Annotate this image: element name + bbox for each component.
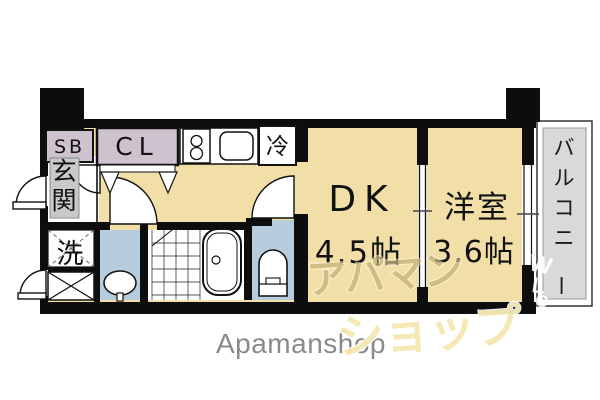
western-room-size-label: 3.6帖 bbox=[433, 235, 515, 270]
wall-divider-bottom-stub bbox=[417, 287, 428, 302]
laundry-label: 洗 bbox=[57, 239, 84, 270]
closet-front bbox=[100, 165, 175, 172]
fridge-label: 冷 bbox=[266, 134, 289, 160]
bathtub-drain-icon bbox=[212, 256, 220, 264]
entrance-label: 玄関 bbox=[51, 157, 76, 215]
toilet bbox=[259, 250, 287, 296]
floorplan-page: バルコニー bbox=[0, 0, 600, 400]
floorplan-svg: バルコニー bbox=[0, 0, 600, 400]
toilet-lid-icon bbox=[266, 278, 280, 284]
stove-burner-icon bbox=[191, 148, 203, 160]
wall-toilet-right bbox=[294, 214, 308, 302]
bathtub-inner bbox=[207, 233, 237, 291]
entrance-door-leaf bbox=[13, 202, 46, 209]
shoe-box-label: SB bbox=[54, 136, 85, 158]
dk-size-label: 4.5帖 bbox=[315, 235, 403, 271]
balcony: バルコニー bbox=[537, 121, 592, 306]
washbasin-tap-icon bbox=[117, 293, 123, 301]
wall-bathrow-b bbox=[157, 222, 248, 230]
wall-left-b bbox=[40, 206, 48, 270]
closet-label: CL bbox=[115, 132, 158, 161]
kitchen-sink-icon bbox=[220, 132, 253, 160]
stove-burner-icon bbox=[191, 136, 202, 147]
wall-divider-top-stub bbox=[417, 119, 428, 165]
dk-label: DK bbox=[328, 179, 395, 220]
wall-block-topright bbox=[506, 88, 540, 122]
meter-box-door-arc bbox=[20, 270, 46, 296]
wall-bottom bbox=[40, 302, 536, 314]
wall-right-b bbox=[522, 265, 534, 314]
toilet-icon bbox=[259, 250, 287, 296]
western-room-label: 洋室 bbox=[444, 190, 510, 226]
washbasin-icon bbox=[104, 271, 136, 295]
wall-bathroom-left bbox=[140, 222, 148, 302]
wall-toilet-left bbox=[244, 222, 252, 300]
wall-toilet-top bbox=[246, 218, 272, 226]
wall-right-a bbox=[522, 119, 534, 165]
wall-laundry-right bbox=[94, 222, 100, 302]
brand-text: Apamanshop bbox=[216, 328, 386, 359]
meter-box-door-leaf bbox=[18, 293, 46, 299]
wall-kitchen-stub bbox=[296, 119, 308, 162]
wall-bathrow-a bbox=[48, 222, 110, 230]
